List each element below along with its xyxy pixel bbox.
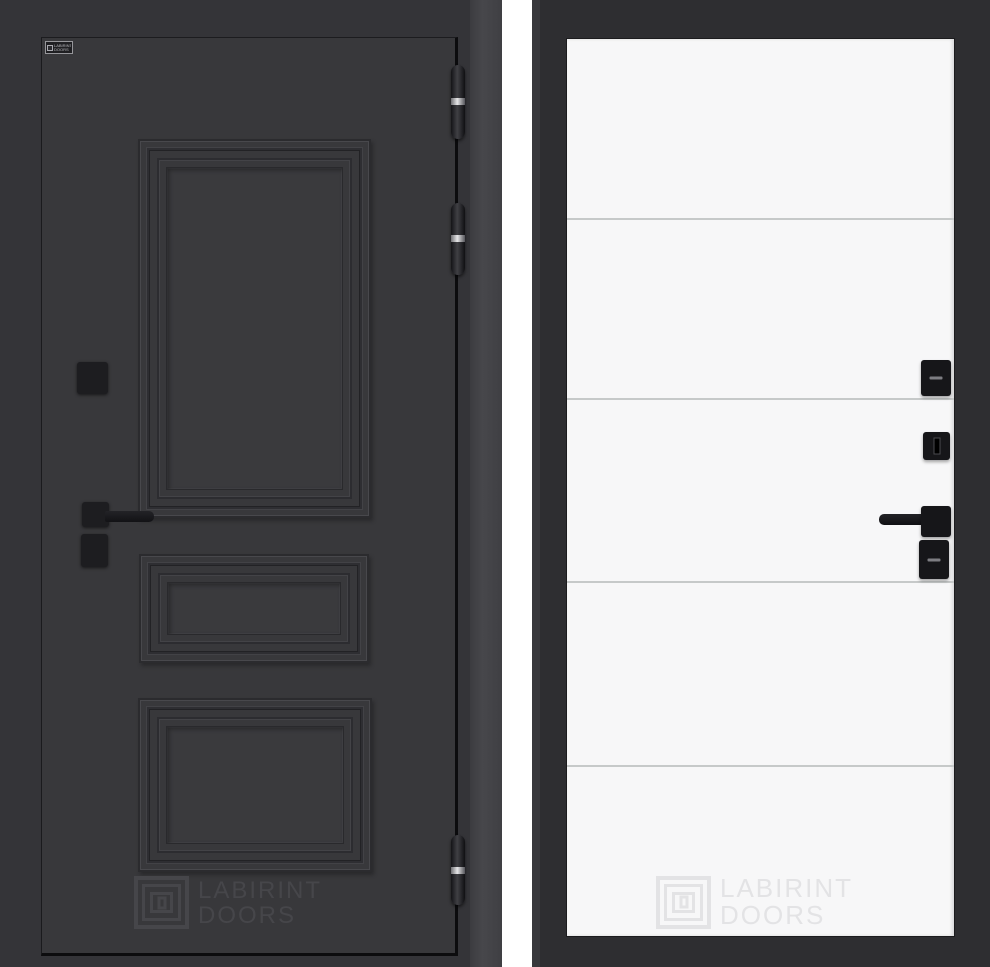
maze-logo-icon (134, 876, 189, 929)
brand-plate-text: LABIRINT DOORS (54, 44, 71, 52)
watermark: LABIRINT DOORS (134, 876, 322, 929)
keyhole-escutcheon-upper (77, 362, 108, 394)
door-hinge-middle (451, 203, 465, 275)
door-panel-middle (139, 554, 369, 663)
hinge-ring (451, 98, 465, 105)
graphite-classic-door: LABIRINT DOORS LABIRINT DOORS (0, 0, 502, 967)
door-casing (470, 0, 502, 967)
brand-logo-icon (47, 45, 53, 51)
door-hinge-bottom (451, 835, 465, 905)
keyhole-icon (934, 439, 939, 454)
escutcheon-slot (928, 558, 941, 561)
white-door-leaf: LABIRINT DOORS (566, 38, 955, 937)
door-handle-lever (105, 511, 154, 522)
handle-rosette (921, 506, 951, 537)
watermark-line1: LABIRINT (198, 878, 322, 903)
brand-plate: LABIRINT DOORS (45, 41, 73, 54)
door-panel-top (138, 139, 371, 518)
keyhole-escutcheon-lower (919, 540, 949, 579)
door-product-photo: LABIRINT DOORS LABIRINT DOORS (0, 0, 990, 967)
groove-line (567, 765, 954, 767)
groove-line (567, 398, 954, 400)
door-handle-lever (879, 514, 926, 525)
maze-logo-icon (656, 876, 711, 929)
watermark: LABIRINT DOORS (656, 875, 853, 929)
door-frame-edge (532, 0, 540, 967)
watermark-line2: DOORS (720, 902, 853, 929)
hinge-ring (451, 867, 465, 874)
door-hinge-top (451, 65, 465, 139)
white-modern-door: LABIRINT DOORS (532, 0, 990, 967)
thumbturn-slot (930, 377, 943, 380)
graphite-door-leaf: LABIRINT DOORS LABIRINT DOORS (41, 37, 458, 956)
keyhole-escutcheon-lower (81, 534, 108, 567)
watermark-line2: DOORS (198, 903, 322, 928)
watermark-line1: LABIRINT (720, 875, 853, 902)
door-panel-bottom (138, 698, 372, 872)
thumbturn-lock (921, 360, 951, 396)
groove-line (567, 581, 954, 583)
groove-line (567, 218, 954, 220)
hinge-ring (451, 235, 465, 242)
cylinder-lock (923, 432, 950, 460)
